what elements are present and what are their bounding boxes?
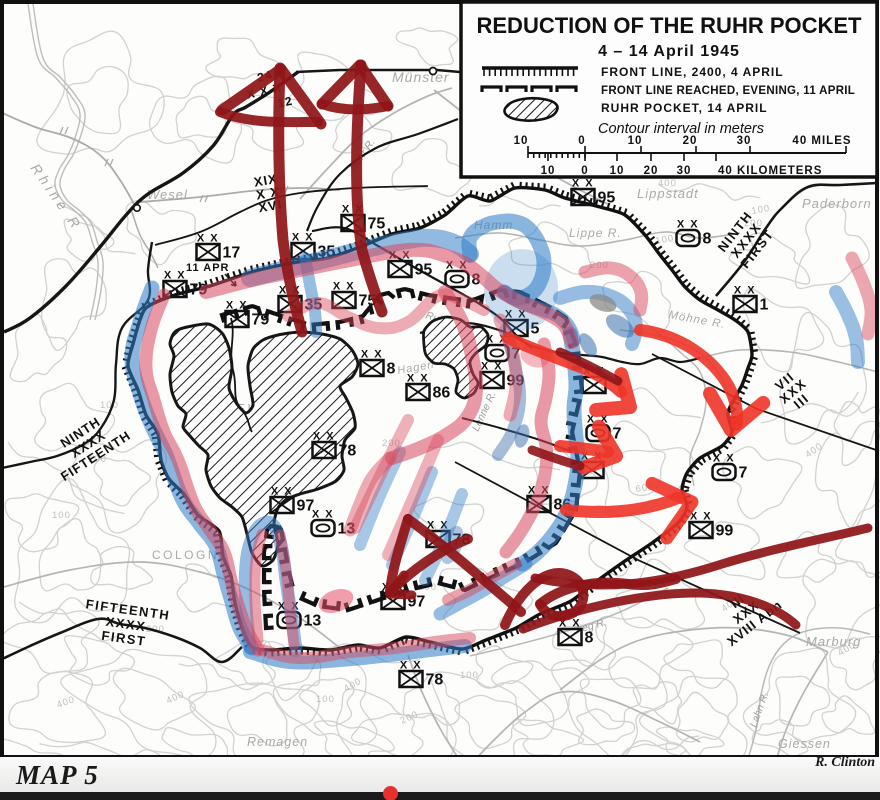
svg-text:100: 100 (460, 670, 479, 681)
svg-text:75: 75 (368, 216, 386, 233)
svg-text:100: 100 (100, 400, 119, 411)
svg-text:20: 20 (683, 135, 698, 147)
svg-text:7: 7 (739, 465, 748, 482)
svg-text:X X: X X (677, 219, 699, 231)
svg-text:1: 1 (760, 297, 769, 314)
svg-text:95: 95 (598, 190, 616, 207)
svg-text:FRONT LINE REACHED, EVENING, 1: FRONT LINE REACHED, EVENING, 11 APRIL (601, 85, 855, 97)
svg-text:17: 17 (223, 245, 241, 262)
svg-text:10: 10 (541, 165, 556, 177)
svg-text:100: 100 (316, 694, 335, 705)
svg-text:RUHR POCKET, 14 APRIL: RUHR POCKET, 14 APRIL (601, 101, 768, 115)
svg-text:86: 86 (433, 385, 451, 402)
svg-text:FRONT LINE, 2400, 4 APRIL: FRONT LINE, 2400, 4 APRIL (601, 65, 784, 79)
svg-text:8: 8 (585, 630, 594, 647)
svg-text:95: 95 (415, 262, 433, 279)
svg-text:X X: X X (690, 511, 712, 523)
svg-text:10: 10 (628, 135, 643, 147)
svg-text:Remagen: Remagen (247, 735, 308, 749)
svg-text:10: 10 (514, 135, 529, 147)
svg-text:8: 8 (703, 231, 712, 248)
svg-text:X X: X X (400, 660, 422, 672)
svg-text:X X: X X (313, 431, 335, 443)
svg-text:40 KILOMETERS: 40 KILOMETERS (718, 165, 822, 177)
svg-text:78: 78 (426, 672, 444, 689)
svg-text:0: 0 (578, 135, 585, 147)
svg-text:Lippstadt: Lippstadt (637, 186, 699, 201)
svg-text:78: 78 (339, 443, 357, 460)
svg-text:X X: X X (481, 361, 503, 373)
svg-text:X X: X X (407, 373, 429, 385)
svg-text:30: 30 (677, 165, 692, 177)
svg-text:X X: X X (271, 486, 293, 498)
svg-text:X X: X X (312, 509, 334, 521)
svg-text:X X: X X (333, 281, 355, 293)
svg-text:X X: X X (292, 232, 314, 244)
svg-text:Lippe R.: Lippe R. (569, 226, 622, 240)
svg-text:X X: X X (572, 178, 594, 190)
svg-text:11 APR: 11 APR (186, 262, 230, 274)
svg-text:X X: X X (713, 453, 735, 465)
svg-text:8: 8 (387, 361, 396, 378)
svg-text:Marburg: Marburg (806, 634, 861, 649)
svg-text:Giessen: Giessen (778, 737, 831, 751)
svg-text:10: 10 (610, 165, 625, 177)
svg-text:20: 20 (644, 165, 659, 177)
svg-text:40 MILES: 40 MILES (792, 135, 851, 147)
svg-text:0: 0 (581, 165, 588, 177)
svg-text:X X: X X (361, 349, 383, 361)
svg-text:4 – 14 April 1945: 4 – 14 April 1945 (598, 43, 740, 60)
svg-text:13: 13 (304, 613, 322, 630)
svg-text:X X: X X (164, 270, 186, 282)
svg-text:99: 99 (716, 523, 734, 540)
svg-text:Paderborn: Paderborn (802, 196, 872, 211)
svg-text:X X: X X (197, 233, 219, 245)
svg-text:79: 79 (252, 312, 270, 329)
svg-text:REDUCTION OF THE RUHR POCKET: REDUCTION OF THE RUHR POCKET (477, 13, 863, 38)
svg-text:X X: X X (226, 300, 248, 312)
svg-text:X X: X X (734, 285, 756, 297)
svg-text:30: 30 (737, 135, 752, 147)
svg-text:100: 100 (52, 510, 71, 521)
